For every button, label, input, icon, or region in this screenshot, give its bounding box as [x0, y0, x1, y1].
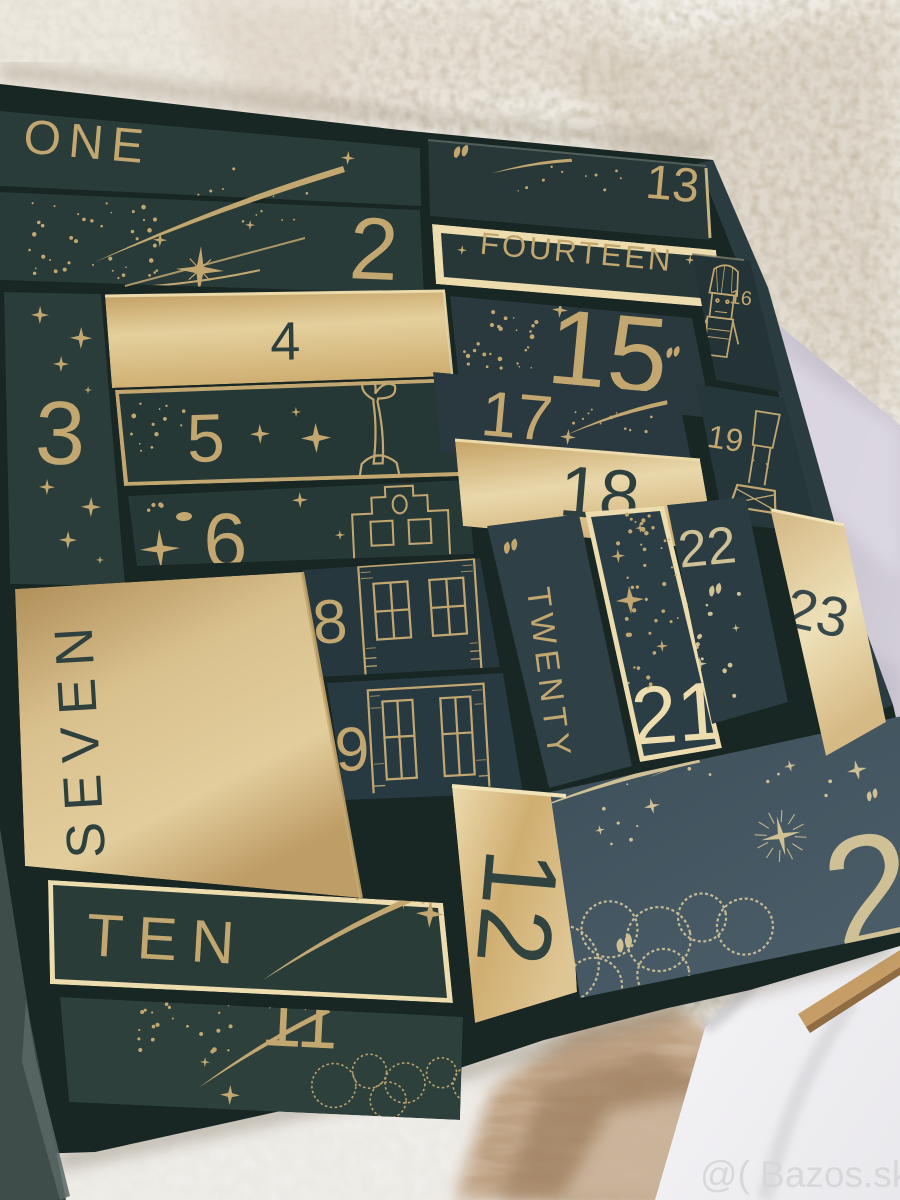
- svg-text:4: 4: [270, 311, 301, 371]
- svg-text:19: 19: [705, 418, 746, 459]
- svg-text:TEN: TEN: [85, 901, 251, 977]
- svg-text:@( Bazos.sk: @( Bazos.sk: [700, 1154, 900, 1195]
- svg-text:2: 2: [347, 198, 400, 299]
- svg-text:3: 3: [34, 383, 86, 484]
- svg-text:22: 22: [675, 516, 738, 580]
- svg-text:5: 5: [185, 400, 225, 477]
